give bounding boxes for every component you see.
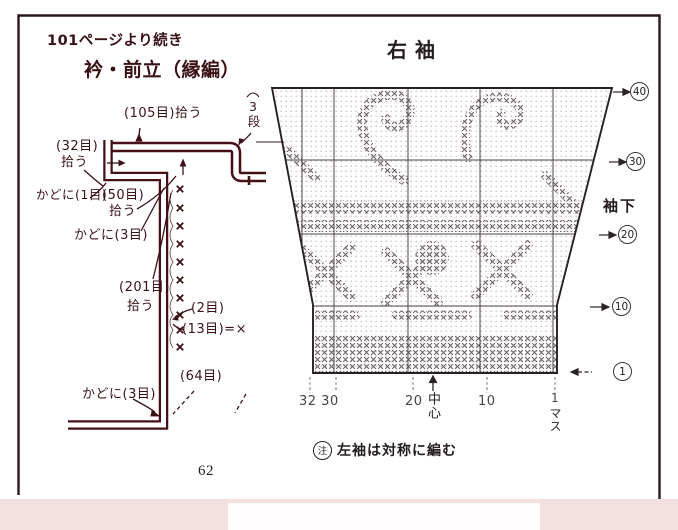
label-pickup-32: (32目) xyxy=(56,140,98,154)
collar-band-art xyxy=(68,93,284,425)
chart-note: 注 左袖は対称に編む xyxy=(313,440,457,460)
label-pickup-50-verb: 拾う xyxy=(109,205,136,219)
label-2-sts: (2目) xyxy=(191,302,224,316)
page-number: 62 xyxy=(198,463,214,479)
label-13-sts: (13目)=× xyxy=(182,323,247,337)
row-marker-30: 30 xyxy=(626,152,645,171)
collar-diagram-title: 衿・前立（縁編） xyxy=(84,60,240,81)
label-corner-3st-bottom: かどに(3目) xyxy=(82,388,156,402)
label-pickup-105: (105目)拾う xyxy=(124,107,202,121)
stitch-label-20: 20 xyxy=(405,395,423,409)
scan-margin-notch xyxy=(228,503,540,530)
center-label: 中心 xyxy=(425,392,439,420)
label-3-rows: 3段 xyxy=(246,99,260,129)
label-pickup-201: (201目) xyxy=(119,281,170,295)
label-13-sts-text: (13目)= xyxy=(182,322,236,337)
bottom-border-motif xyxy=(313,334,557,372)
label-pickup-32-verb: 拾う xyxy=(61,156,88,170)
label-pickup-50: (50目) xyxy=(102,189,144,203)
note-text: 左袖は対称に編む xyxy=(337,440,457,460)
collar-leaders xyxy=(84,93,284,414)
scan-margin xyxy=(0,499,678,530)
label-corner-1st: かどに(1目) xyxy=(36,188,107,202)
sleeve-chart-art xyxy=(265,82,630,393)
sleeve-chart-title: 右袖 xyxy=(387,40,443,62)
scanned-page: 101ページより続き 衿・前立（縁編） (105目)拾う 3段 (32目) 拾う… xyxy=(0,0,678,530)
center-motif xyxy=(415,241,449,275)
row-marker-1: 1 xyxy=(613,362,632,381)
row-marker-20: 20 xyxy=(618,225,637,244)
stitch-label-10: 10 xyxy=(478,395,496,409)
stitch-label-32-30: 32 30 xyxy=(299,395,339,409)
continuation-note: 101ページより続き xyxy=(47,34,183,50)
stitch-label-1: 1 xyxy=(551,392,559,405)
center-arrow xyxy=(430,376,437,391)
note-circle-mark: 注 xyxy=(313,441,332,460)
unit-label-masu: マス xyxy=(548,407,561,433)
row-marker-40: 40 xyxy=(630,82,649,101)
label-64-sts: (64目) xyxy=(180,370,222,384)
label-corner-3st-top: かどに(3目) xyxy=(74,229,148,243)
row-marker-10: 10 xyxy=(612,297,631,316)
label-pickup-201-verb: 拾う xyxy=(127,300,154,314)
underarm-label: 袖下 xyxy=(603,198,637,214)
pickup-scallops xyxy=(170,190,173,348)
label-13-sts-mark: × xyxy=(236,322,247,337)
